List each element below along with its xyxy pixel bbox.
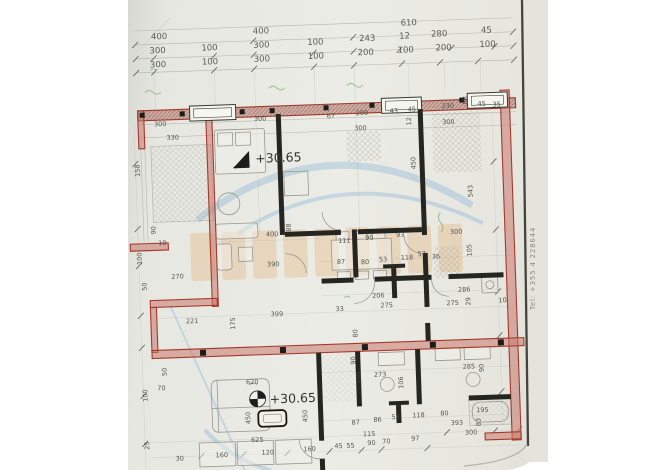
dimension-label: 243 bbox=[359, 34, 376, 45]
dimension-label: 33 bbox=[335, 305, 344, 313]
dimension-label: 221 bbox=[186, 317, 199, 325]
dimension-label: 118 bbox=[401, 253, 414, 261]
dimension-label: 36 bbox=[432, 252, 441, 260]
dimension-label: 70 bbox=[382, 437, 391, 445]
dimension-label: 400 bbox=[253, 26, 270, 37]
dimension-label: 400 bbox=[151, 32, 168, 43]
dimension-label: 25 bbox=[143, 441, 151, 450]
dimension-label: 105 bbox=[465, 244, 473, 257]
dimension-label: 300 bbox=[253, 40, 270, 51]
dimension-label: 87 bbox=[337, 258, 346, 266]
dimension-label: 55 bbox=[346, 442, 355, 450]
dimension-label: 57 bbox=[418, 250, 427, 258]
dimension-label: 300 bbox=[450, 228, 463, 236]
dimension-label: 625 bbox=[251, 436, 264, 444]
dimension-label: 45 bbox=[334, 442, 343, 450]
dimension-label: 195 bbox=[476, 406, 489, 414]
dimension-label: 100 bbox=[397, 45, 414, 56]
benchmark-icon bbox=[249, 391, 266, 408]
floor-plan-paper: 4004006103001003001002431228045300100300… bbox=[128, 0, 548, 470]
dimension-label: 12 bbox=[405, 117, 413, 126]
dimension-label: 275 bbox=[446, 299, 459, 307]
scanned-photo-background: 4004006103001003001002431228045300100300… bbox=[0, 0, 670, 470]
dimension-label: 106 bbox=[397, 376, 405, 389]
dimension-label: 543 bbox=[466, 185, 474, 198]
dimension-label: 200 bbox=[357, 48, 374, 59]
elevation-label: +30.65 bbox=[255, 149, 302, 166]
margin-phone-note: Tel: +355 4 228644 bbox=[529, 227, 537, 311]
dimension-label: 160 bbox=[303, 445, 316, 453]
dimension-label: 100 bbox=[202, 57, 219, 68]
dimension-label: 175 bbox=[229, 317, 237, 330]
dimension-label: 300 bbox=[254, 114, 267, 122]
dimension-label: 286 bbox=[458, 285, 471, 293]
dimension-label: 53 bbox=[391, 413, 400, 421]
dimension-label: 300 bbox=[254, 54, 271, 65]
dimension-label: 300 bbox=[154, 120, 167, 128]
dimension-label: 111 bbox=[338, 237, 351, 245]
dimension-label: 100 bbox=[141, 389, 149, 402]
dimension-label: 400 bbox=[266, 230, 279, 238]
dimension-label: 53 bbox=[379, 255, 388, 263]
dimension-label: 100 bbox=[307, 37, 324, 48]
dimension-label: 87 bbox=[351, 418, 360, 426]
dimension-label: 86 bbox=[373, 416, 382, 424]
dimension-label: 100 bbox=[201, 43, 218, 54]
dimension-label: 80 bbox=[361, 258, 370, 266]
dimension-label: 90 bbox=[349, 356, 357, 365]
dimension-label: 230 bbox=[441, 102, 454, 110]
dimension-label: 90 bbox=[367, 439, 376, 447]
dimension-label: 80 bbox=[440, 409, 449, 417]
elevation-label: +30.65 bbox=[269, 390, 316, 407]
dimension-label: 280 bbox=[431, 29, 448, 40]
dimension-label: 90 bbox=[150, 226, 158, 235]
paper-corner-curve bbox=[464, 444, 527, 466]
dimension-label: 93 bbox=[396, 231, 405, 239]
dimension-label: 118 bbox=[412, 411, 425, 419]
dimension-label: 285 bbox=[463, 362, 476, 370]
dimension-label: 610 bbox=[400, 18, 417, 29]
dimension-label: 90 bbox=[365, 234, 374, 242]
dimension-label: 115 bbox=[363, 430, 376, 438]
dimension-label: 206 bbox=[372, 291, 385, 299]
dimension-label: 43 bbox=[390, 107, 399, 115]
dimension-label: 90 bbox=[478, 364, 486, 373]
dimension-label: 50 bbox=[161, 368, 169, 377]
dimension-label: 67 bbox=[327, 112, 336, 120]
dimension-label: 160 bbox=[215, 451, 228, 459]
dimension-label: 390 bbox=[267, 260, 280, 268]
dimension-label: 393 bbox=[450, 419, 463, 427]
dimension-label: 10 bbox=[158, 239, 167, 247]
dimension-label: 200 bbox=[355, 372, 363, 385]
dimension-label: 200 bbox=[435, 43, 452, 54]
dimension-label: 399 bbox=[271, 310, 284, 318]
dimension-label: 50 bbox=[141, 282, 149, 291]
dimension-label: 100 bbox=[308, 51, 325, 62]
dimension-label: 620 bbox=[246, 378, 259, 386]
dimension-label: 158 bbox=[133, 164, 141, 177]
dimension-label: 300 bbox=[149, 46, 166, 57]
dimension-label: 88 bbox=[461, 96, 469, 105]
dimension-label: 29 bbox=[464, 297, 472, 306]
dimension-label: 450 bbox=[301, 410, 309, 423]
dimension-label: 45 bbox=[477, 100, 486, 108]
dimension-label: 80 bbox=[351, 329, 359, 338]
dimension-label: 70 bbox=[157, 384, 166, 392]
dimension-label: 300 bbox=[354, 124, 367, 132]
dimension-label: 275 bbox=[380, 301, 393, 309]
floor-plan-svg: 4004006103001003001002431228045300100300… bbox=[128, 0, 548, 470]
dimension-label: 83 bbox=[474, 418, 482, 427]
dimension-label: 45 bbox=[481, 26, 492, 36]
dimension-label: 273 bbox=[374, 370, 387, 378]
dimension-label: 97 bbox=[411, 434, 420, 442]
dimension-label: 300 bbox=[150, 60, 167, 71]
dimension-label: 300 bbox=[465, 428, 478, 436]
dimension-label: 12 bbox=[399, 31, 410, 41]
drawing-tilt-group: 4004006103001003001002431228045300100300… bbox=[128, 6, 531, 470]
dimension-label: 200 bbox=[356, 109, 369, 117]
dimension-label: 100 bbox=[135, 252, 143, 265]
dimension-label: 300 bbox=[442, 118, 455, 126]
dimension-label: 450 bbox=[409, 157, 417, 170]
dimension-label: 30 bbox=[176, 455, 185, 463]
dimension-label: 450 bbox=[244, 412, 252, 425]
dimension-label: 120 bbox=[261, 448, 274, 456]
dimension-label: 330 bbox=[166, 133, 179, 141]
dimension-label: 35 bbox=[492, 100, 501, 108]
dimension-label: 10 bbox=[498, 296, 507, 304]
dimension-label: 100 bbox=[479, 39, 496, 50]
dimension-label: 270 bbox=[171, 272, 184, 280]
dimension-label: 88 bbox=[285, 223, 293, 232]
dimension-label: 45 bbox=[408, 105, 417, 113]
